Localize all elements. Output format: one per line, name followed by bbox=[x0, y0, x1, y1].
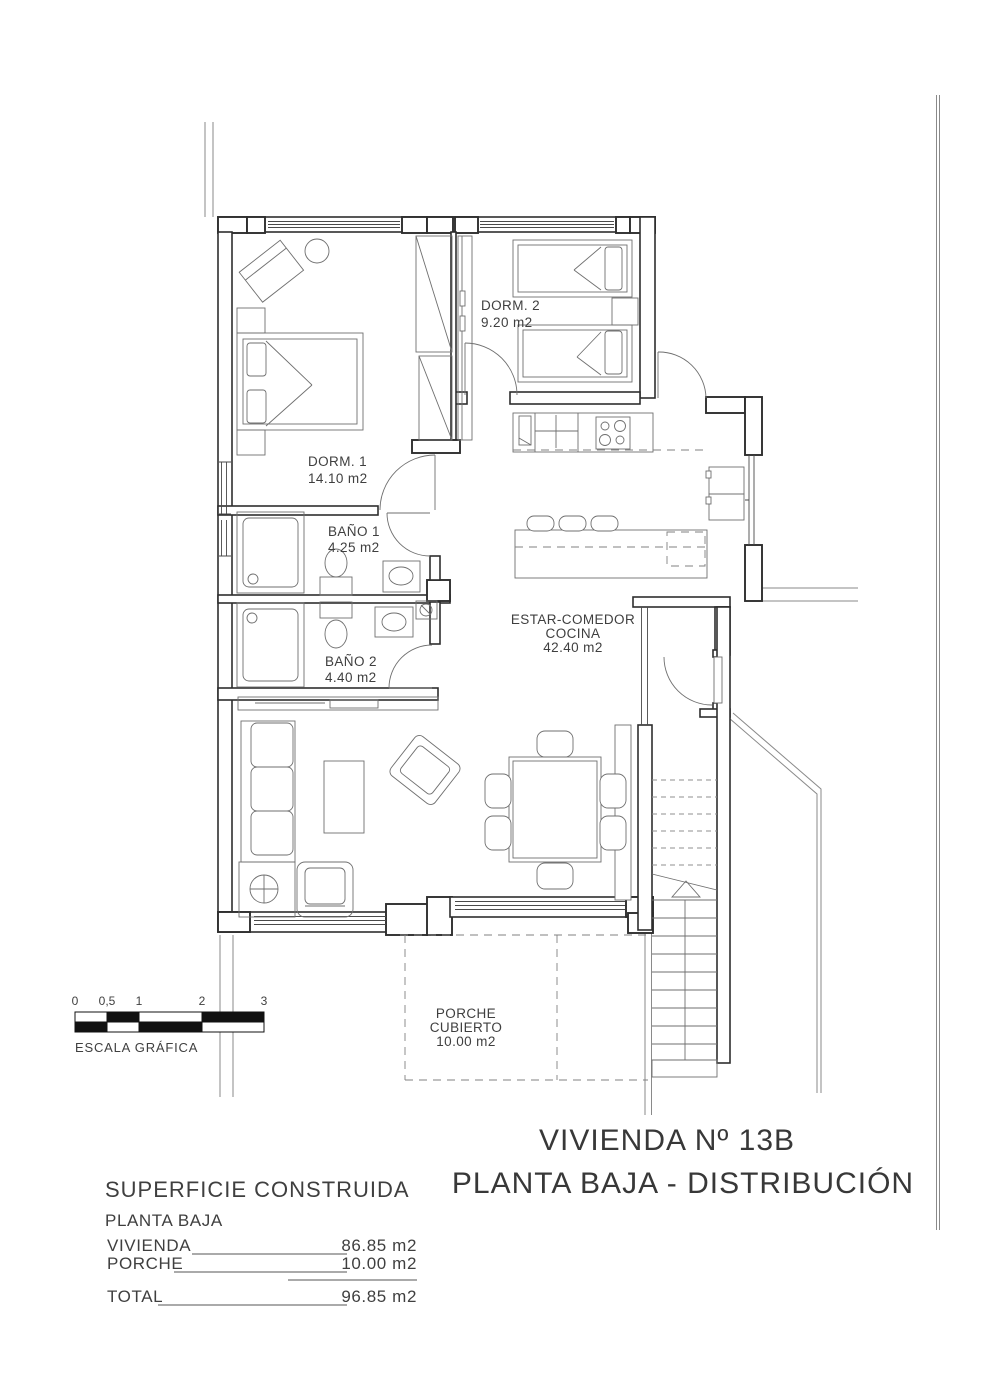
sink bbox=[519, 416, 531, 445]
island-bar bbox=[515, 530, 707, 578]
shower bbox=[237, 603, 304, 687]
armchair bbox=[297, 862, 353, 917]
label-dorm2-area: 9.20 m2 bbox=[481, 315, 533, 330]
door-bano1 bbox=[387, 513, 430, 556]
area-summary-table: SUPERFICIE CONSTRUIDA PLANTA BAJA VIVIEN… bbox=[105, 1177, 417, 1306]
counter bbox=[513, 413, 653, 452]
nightstand bbox=[237, 308, 265, 333]
toilet bbox=[320, 602, 352, 648]
stool bbox=[527, 516, 554, 531]
corner-table-lamp bbox=[239, 862, 295, 917]
label-bano2-area: 4.40 m2 bbox=[325, 670, 377, 685]
stairs-up-arrow bbox=[672, 881, 700, 897]
stool bbox=[591, 516, 618, 531]
door-dorm2 bbox=[465, 343, 517, 395]
label-bano1-name: BAÑO 1 bbox=[328, 524, 380, 539]
toilet bbox=[320, 549, 352, 595]
scale-bar: 0 0,5 1 2 3 ESCALA GRÁFICA bbox=[72, 994, 268, 1055]
summary-heading: SUPERFICIE CONSTRUIDA bbox=[105, 1177, 410, 1202]
double-bed bbox=[237, 333, 363, 430]
summary-row-value: 10.00 m2 bbox=[341, 1254, 417, 1273]
scale-bar-blocks bbox=[75, 1012, 264, 1032]
furniture bbox=[237, 236, 744, 917]
drawing-title-line1: VIVIENDA Nº 13B bbox=[539, 1124, 795, 1157]
label-estar-name2: COCINA bbox=[546, 626, 601, 641]
label-dorm1-name: DORM. 1 bbox=[308, 454, 367, 469]
summary-row-value: 86.85 m2 bbox=[341, 1236, 417, 1255]
site-boundary-lines bbox=[205, 95, 940, 1230]
desk-chair bbox=[305, 239, 329, 263]
hob bbox=[596, 417, 630, 449]
scale-tick-1: 1 bbox=[136, 994, 143, 1008]
coffee-table bbox=[324, 761, 364, 833]
floor-plan-drawing: DORM. 1 14.10 m2 DORM. 2 9.20 m2 BAÑO 1 … bbox=[0, 0, 989, 1400]
scale-bar-caption: ESCALA GRÁFICA bbox=[75, 1040, 198, 1055]
glazing-dining-east bbox=[642, 607, 648, 725]
stool bbox=[559, 516, 586, 531]
door-dorm1 bbox=[380, 455, 435, 510]
dishwasher bbox=[667, 532, 705, 566]
armchair-angled bbox=[388, 733, 463, 807]
summary-total-label: TOTAL bbox=[107, 1287, 163, 1306]
floor-plan-page: DORM. 1 14.10 m2 DORM. 2 9.20 m2 BAÑO 1 … bbox=[0, 0, 989, 1400]
desk bbox=[239, 240, 303, 302]
washbasin bbox=[383, 561, 420, 592]
summary-row-label: PORCHE bbox=[107, 1254, 183, 1273]
title-block: VIVIENDA Nº 13B PLANTA BAJA - DISTRIBUCI… bbox=[452, 1124, 914, 1200]
chair bbox=[600, 774, 626, 808]
label-bano1-area: 4.25 m2 bbox=[328, 540, 380, 555]
shower bbox=[237, 512, 304, 593]
fridge bbox=[706, 467, 744, 520]
window-hall-right bbox=[745, 455, 754, 545]
label-porche-name: PORCHE bbox=[436, 1006, 496, 1021]
chair bbox=[485, 774, 511, 808]
chair bbox=[485, 816, 511, 850]
door-terrace bbox=[664, 657, 722, 705]
nightstand bbox=[612, 298, 638, 325]
scale-tick-2: 2 bbox=[199, 994, 206, 1008]
single-bed bbox=[518, 325, 632, 382]
nightstand bbox=[237, 430, 265, 455]
bottom-step bbox=[652, 1060, 717, 1077]
sliding-door-leaf bbox=[615, 725, 631, 900]
drawing-title-line2: PLANTA BAJA - DISTRIBUCIÓN bbox=[452, 1167, 914, 1200]
summary-subheading: PLANTA BAJA bbox=[105, 1211, 223, 1230]
scale-tick-3: 3 bbox=[261, 994, 268, 1008]
furniture-dorm1 bbox=[237, 239, 363, 455]
door-entrance bbox=[658, 352, 706, 398]
scale-tick-05: 0,5 bbox=[99, 994, 116, 1008]
label-dorm2-name: DORM. 2 bbox=[481, 298, 540, 313]
chair bbox=[537, 863, 573, 889]
chair bbox=[537, 731, 573, 757]
dining-table bbox=[509, 757, 601, 862]
dining-furniture bbox=[485, 731, 626, 889]
wardrobes bbox=[416, 236, 472, 440]
living-room-furniture bbox=[238, 697, 462, 917]
label-porche-name2: CUBIERTO bbox=[430, 1020, 502, 1035]
stairs bbox=[652, 780, 717, 1077]
summary-row-label: VIVIENDA bbox=[107, 1236, 191, 1255]
door-bano2 bbox=[389, 645, 432, 688]
label-estar-name: ESTAR-COMEDOR bbox=[511, 612, 635, 627]
summary-total-value: 96.85 m2 bbox=[341, 1287, 417, 1306]
kitchen bbox=[513, 413, 744, 578]
label-estar-area: 42.40 m2 bbox=[543, 640, 603, 655]
sofa bbox=[241, 721, 295, 862]
scale-tick-0: 0 bbox=[72, 994, 79, 1008]
label-bano2-name: BAÑO 2 bbox=[325, 654, 377, 669]
single-bed bbox=[513, 240, 632, 297]
label-dorm1-area: 14.10 m2 bbox=[308, 471, 368, 486]
chair bbox=[600, 816, 626, 850]
washbasin bbox=[375, 607, 413, 637]
label-porche-area: 10.00 m2 bbox=[436, 1034, 496, 1049]
